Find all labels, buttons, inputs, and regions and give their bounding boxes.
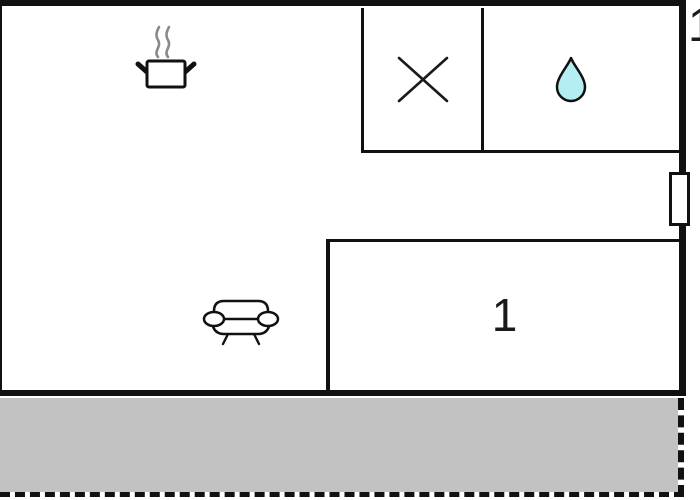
sofa-leg-left (223, 334, 228, 344)
room-1-box: 1 (326, 239, 679, 392)
sofa-armrest-left (204, 312, 224, 326)
water-drop-icon (555, 56, 587, 103)
floorplan-canvas: 1 1 (0, 0, 700, 500)
shower-cross-icon (397, 56, 449, 103)
sofa-icon (202, 297, 280, 347)
sofa-leg-right (254, 334, 259, 344)
steam-line (166, 27, 169, 57)
bathroom-box (361, 8, 679, 153)
bathroom-shower-cell (364, 8, 481, 150)
bathroom-water-cell (484, 8, 679, 150)
room-1-label: 1 (492, 292, 518, 338)
cooking-pot-icon (128, 24, 200, 92)
sofa-armrest-right (258, 312, 278, 326)
window-marker (669, 172, 690, 226)
unit-number-label: 1 (688, 1, 700, 48)
terrace-area (0, 398, 684, 497)
steam-line (156, 27, 159, 57)
pot-body (147, 61, 185, 87)
